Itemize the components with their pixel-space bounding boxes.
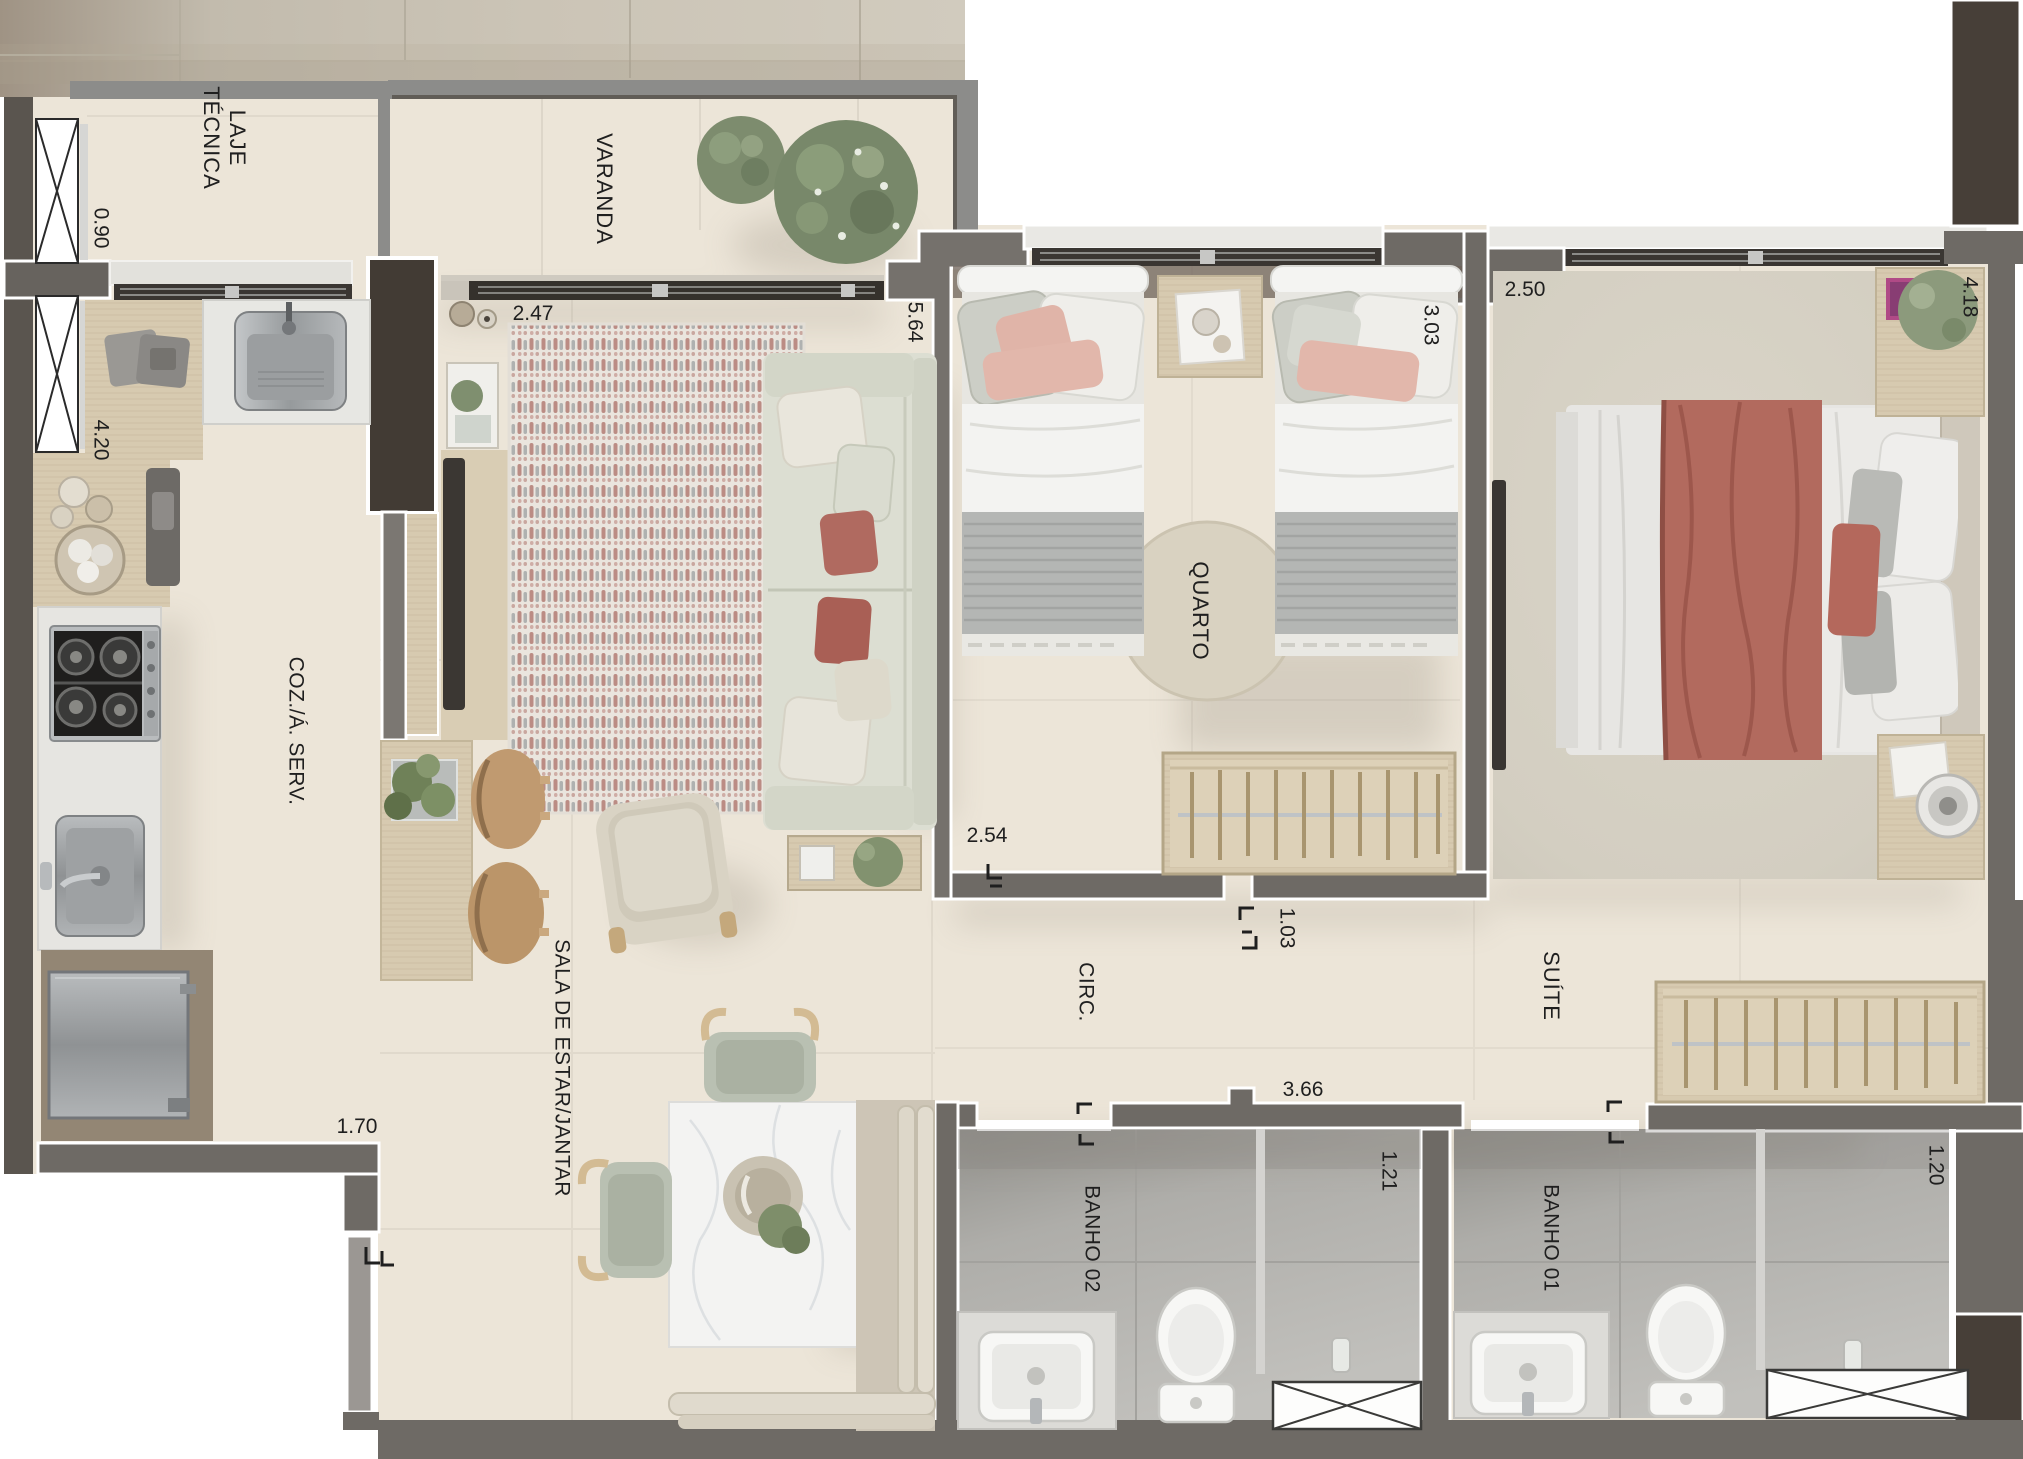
svg-text:QUARTO: QUARTO: [1188, 561, 1213, 660]
svg-text:3.66: 3.66: [1283, 1078, 1324, 1101]
svg-text:CIRC.: CIRC.: [1074, 962, 1097, 1022]
svg-text:SALA DE ESTAR/JANTAR: SALA DE ESTAR/JANTAR: [550, 939, 573, 1197]
svg-text:BANHO 01: BANHO 01: [1539, 1184, 1562, 1292]
svg-text:VARANDA: VARANDA: [592, 133, 617, 245]
svg-text:2.47: 2.47: [513, 302, 554, 325]
svg-text:4.18: 4.18: [1958, 277, 1981, 318]
svg-text:2.54: 2.54: [967, 824, 1008, 847]
svg-text:1.03: 1.03: [1275, 908, 1298, 949]
svg-text:COZ./Á. SERV.: COZ./Á. SERV.: [284, 657, 307, 806]
svg-text:1.20: 1.20: [1924, 1145, 1947, 1186]
svg-text:SUÍTE: SUÍTE: [1539, 951, 1564, 1021]
svg-text:2.50: 2.50: [1505, 278, 1546, 301]
svg-text:5.64: 5.64: [903, 302, 926, 343]
svg-text:1.21: 1.21: [1377, 1151, 1400, 1192]
svg-text:3.03: 3.03: [1419, 305, 1442, 346]
svg-text:BANHO 02: BANHO 02: [1080, 1185, 1103, 1293]
svg-text:4.20: 4.20: [89, 420, 112, 461]
svg-text:0.90: 0.90: [89, 208, 112, 249]
svg-text:1.70: 1.70: [337, 1115, 378, 1138]
